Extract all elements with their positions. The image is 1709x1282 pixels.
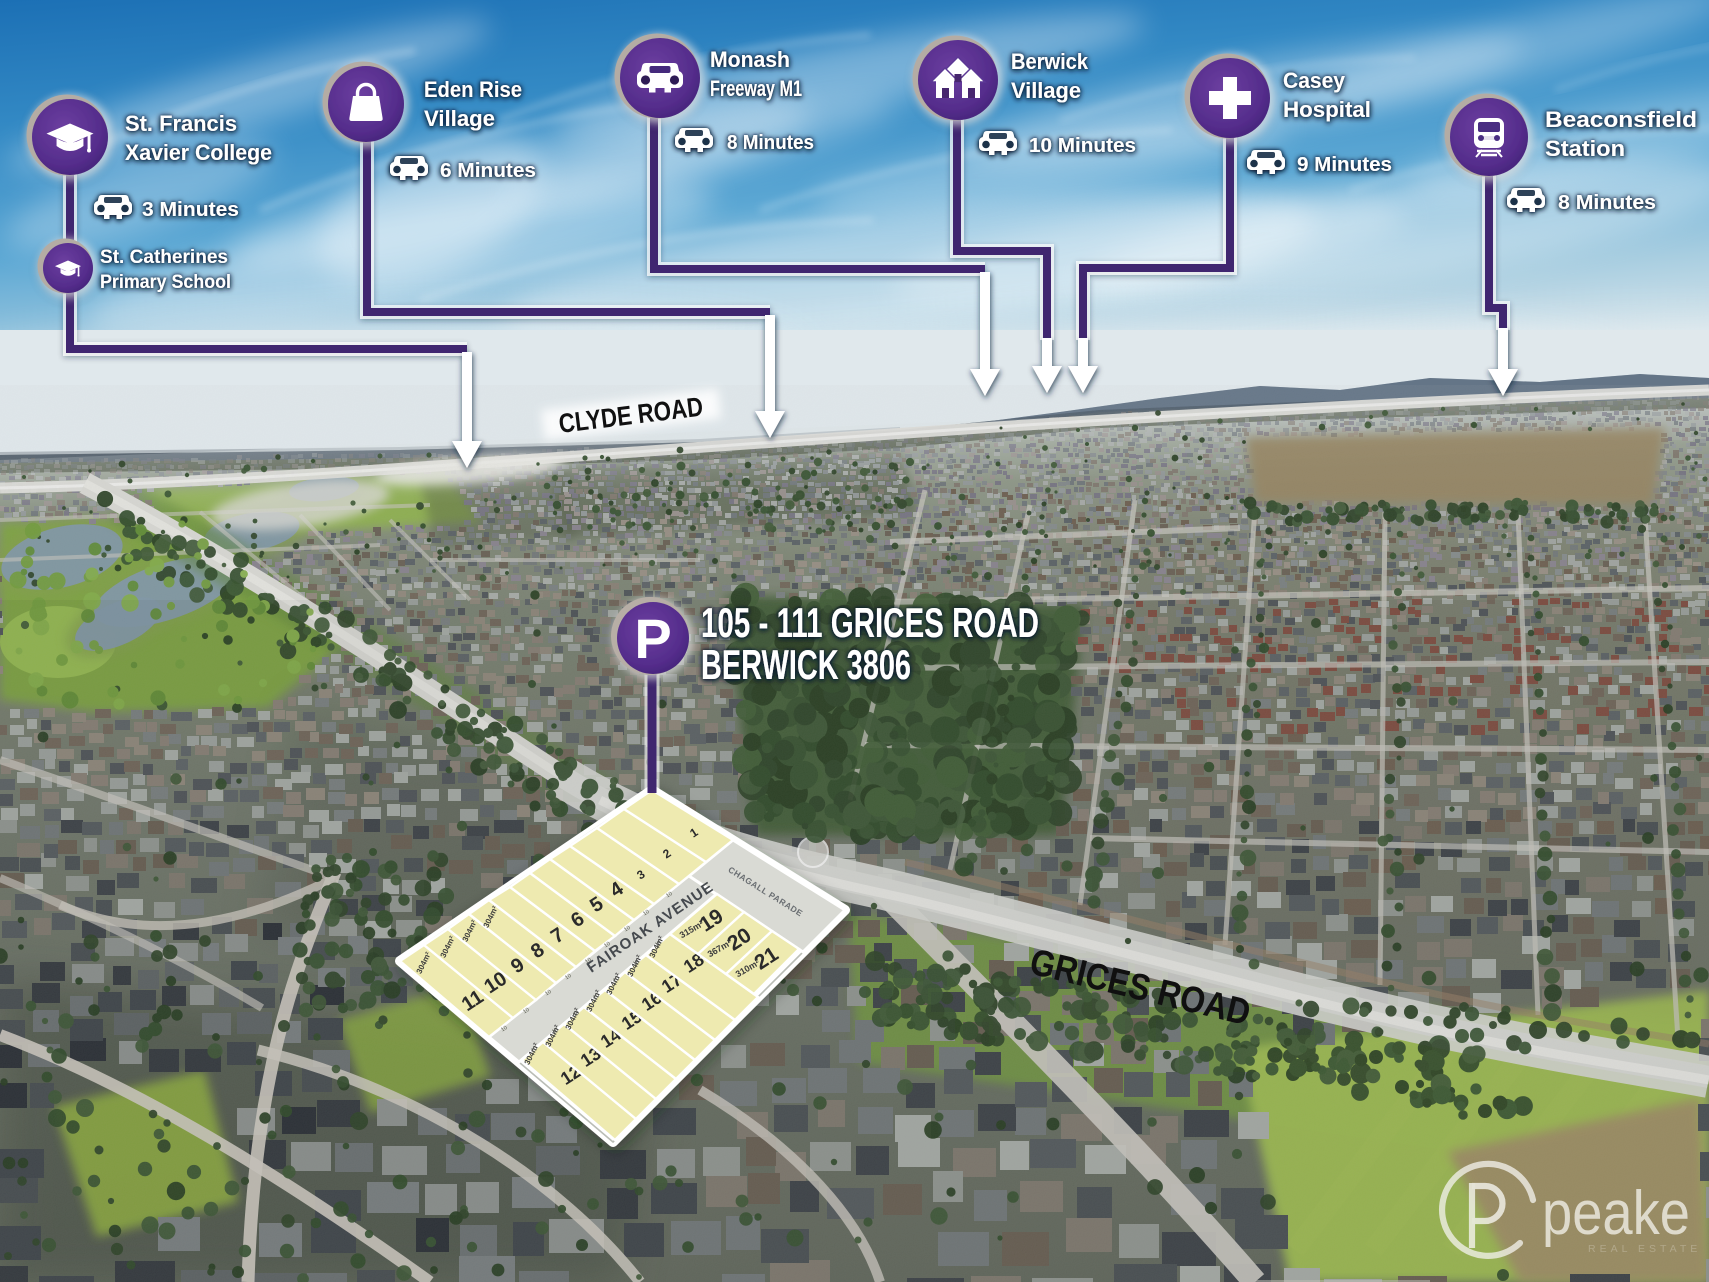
svg-text:8 Minutes: 8 Minutes <box>727 132 814 154</box>
svg-text:Station: Station <box>1545 136 1625 161</box>
svg-text:Berwick: Berwick <box>1011 49 1089 74</box>
svg-text:6 Minutes: 6 Minutes <box>440 160 536 182</box>
svg-text:P: P <box>634 607 671 670</box>
svg-text:Hospital: Hospital <box>1283 97 1371 122</box>
svg-text:REAL ESTATE: REAL ESTATE <box>1588 1243 1701 1255</box>
svg-text:3 Minutes: 3 Minutes <box>142 199 239 221</box>
svg-text:105 - 111 GRICES ROAD: 105 - 111 GRICES ROAD <box>701 599 1039 646</box>
svg-text:Eden Rise: Eden Rise <box>424 77 522 102</box>
svg-text:Primary School: Primary School <box>100 272 231 293</box>
svg-text:10 Minutes: 10 Minutes <box>1029 135 1136 157</box>
svg-text:Village: Village <box>424 106 495 131</box>
svg-text:St. Francis: St. Francis <box>125 111 237 136</box>
svg-text:Beaconsfield: Beaconsfield <box>1545 107 1697 132</box>
svg-text:peake: peake <box>1542 1179 1690 1248</box>
svg-text:9 Minutes: 9 Minutes <box>1297 154 1392 176</box>
svg-text:Village: Village <box>1011 78 1081 103</box>
svg-text:Monash: Monash <box>710 47 790 72</box>
svg-text:Freeway M1: Freeway M1 <box>710 76 802 101</box>
svg-text:Xavier College: Xavier College <box>125 140 272 165</box>
svg-text:Casey: Casey <box>1283 68 1346 93</box>
svg-text:BERWICK 3806: BERWICK 3806 <box>701 641 911 688</box>
svg-text:8 Minutes: 8 Minutes <box>1558 192 1656 214</box>
svg-text:St. Catherines: St. Catherines <box>100 247 228 268</box>
